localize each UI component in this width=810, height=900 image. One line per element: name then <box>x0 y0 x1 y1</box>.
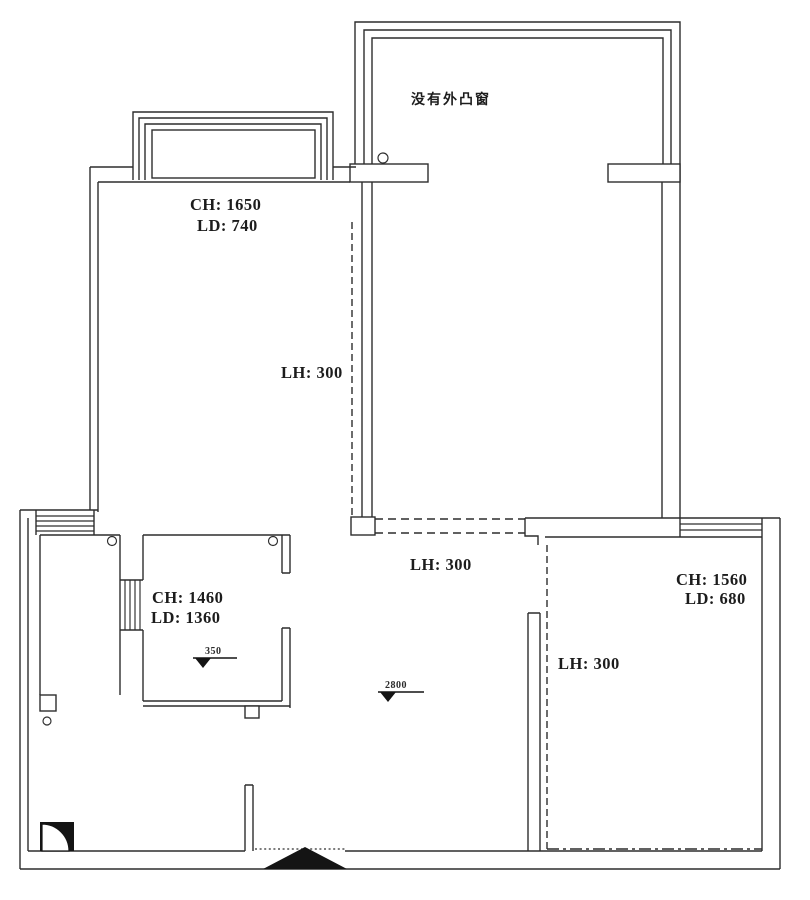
room-nw-ld: LD: 740 <box>197 216 258 235</box>
room-ne-right-wall <box>662 182 680 518</box>
room-divider-wall <box>351 182 375 535</box>
bottom-wall <box>20 785 780 869</box>
low-wall-height-center: LH: 300 <box>410 555 472 574</box>
level-triangle-icon <box>195 658 211 668</box>
level-value-hall: 2800 <box>385 680 407 691</box>
balcony-wall-piers <box>350 153 680 182</box>
room-nw-walls <box>90 167 98 512</box>
entrance-door-symbol <box>263 847 347 869</box>
bathroom-ld: LD: 1360 <box>151 608 221 627</box>
bay-window <box>90 112 356 182</box>
low-wall-height-se: LH: 300 <box>558 654 620 673</box>
room-nw-ceiling-height: CH: 1650 <box>190 195 261 214</box>
floor-plan-drawing: 350 2800 没有外凸窗 CH: 1650 LD: 740 LH: 300 … <box>0 0 810 900</box>
level-value-bathroom: 350 <box>205 646 222 657</box>
level-marker-hall: 2800 <box>378 680 424 702</box>
left-wing-walls <box>20 510 120 869</box>
balcony-window-walls <box>355 22 680 182</box>
level-triangle-icon <box>380 692 396 702</box>
bathroom-ceiling-height: CH: 1460 <box>152 588 223 607</box>
floor-plan-canvas: 350 2800 没有外凸窗 CH: 1650 LD: 740 LH: 300 … <box>0 0 810 900</box>
room-se-ceiling-height: CH: 1560 <box>676 570 747 589</box>
room-se-ld: LD: 680 <box>685 589 746 608</box>
level-marker-bathroom: 350 <box>193 646 237 668</box>
low-wall-height-nw: LH: 300 <box>281 363 343 382</box>
balcony-note: 没有外凸窗 <box>411 91 491 108</box>
half-wall-dashed-lines <box>352 222 762 849</box>
